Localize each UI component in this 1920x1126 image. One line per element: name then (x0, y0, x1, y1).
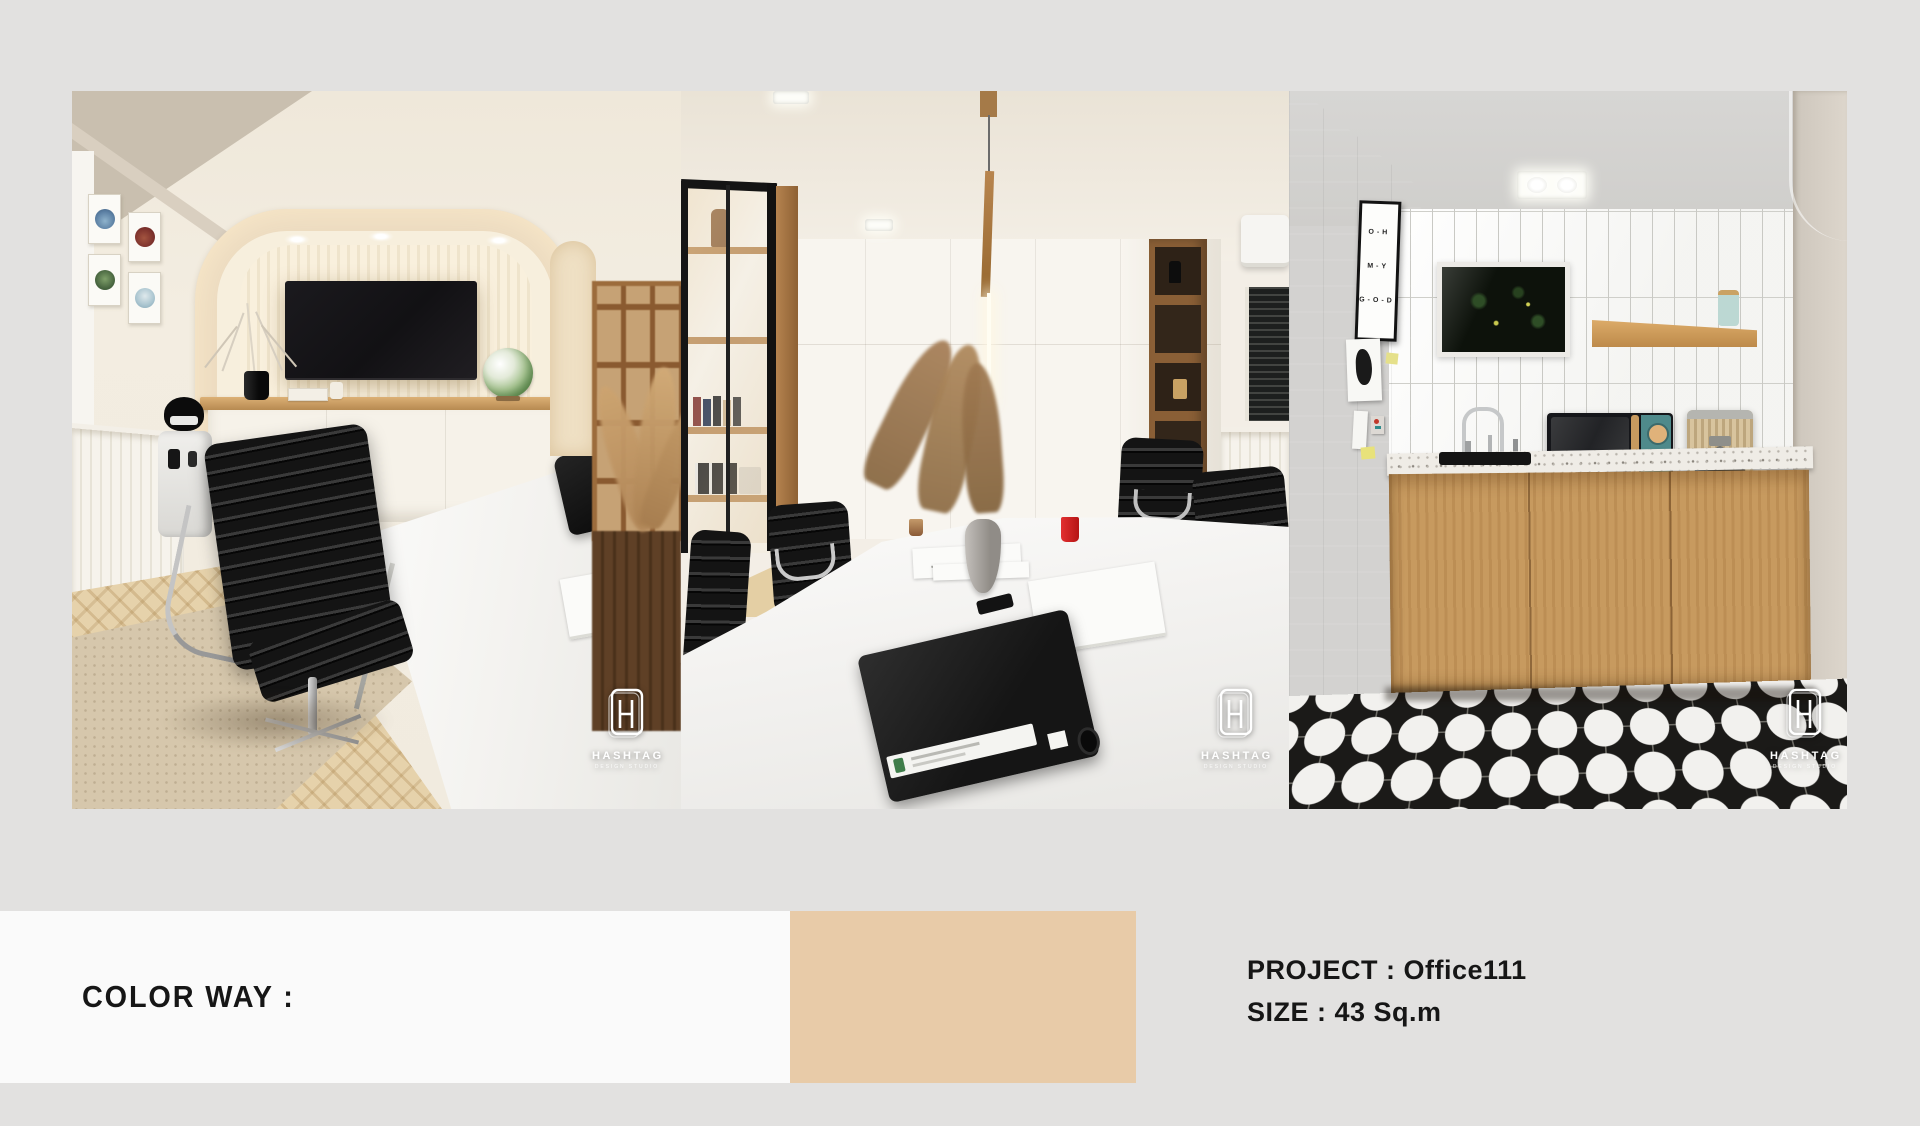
size-line: SIZE : 43 Sq.m (1247, 991, 1527, 1033)
photo-kitchenette: O-H M-Y G-O-D (1289, 91, 1847, 809)
color-way-label: COLOR WAY : (82, 911, 295, 1083)
air-conditioner (1241, 215, 1289, 267)
logo-tagline: DESIGN STUDIO (592, 764, 662, 770)
red-cup (1061, 517, 1079, 542)
window (1437, 262, 1570, 357)
hashtag-monogram-icon (1213, 687, 1259, 743)
pinned-note (1352, 411, 1368, 450)
sticky-note (1385, 352, 1398, 364)
hashtag-logo: HASHTAG DESIGN STUDIO (1770, 687, 1840, 770)
poster-line: M-Y (1360, 249, 1397, 284)
partition-frame (767, 183, 776, 551)
arched-doorway (550, 241, 596, 456)
floor-shadow (162, 691, 392, 751)
hashtag-logo: HASHTAG DESIGN STUDIO (1201, 687, 1271, 770)
color-way-band: COLOR WAY : (0, 911, 790, 1083)
globe-base (496, 396, 520, 401)
framed-poster: O-H M-Y G-O-D (1355, 200, 1402, 341)
poster-line: G-O-D (1358, 283, 1395, 318)
shelf-cubby (1155, 305, 1201, 353)
sticky-note (1361, 446, 1376, 459)
recessed-light (284, 234, 310, 245)
toe-kick-shadow (1385, 687, 1815, 701)
photo-private-office: HASHTAG DESIGN STUDIO (72, 91, 681, 809)
framed-print (128, 212, 161, 262)
hashtag-monogram-icon (1782, 687, 1828, 743)
oak-cabinets (1389, 470, 1811, 696)
pinned-print (1346, 338, 1382, 401)
recessed-light (368, 231, 394, 242)
pendant-mount (980, 91, 997, 117)
design-board: { "canvas": { "background": "#E2E1E0" },… (0, 0, 1920, 1126)
logo-text: HASHTAG (1770, 750, 1840, 762)
logo-text: HASHTAG (1201, 750, 1271, 762)
framed-print (88, 194, 121, 244)
framed-print (128, 272, 161, 324)
coffee-cup (909, 519, 923, 536)
logo-tagline: DESIGN STUDIO (1201, 764, 1271, 770)
dried-branches (212, 303, 296, 379)
poster-line: O-H (1361, 215, 1398, 250)
small-jar (330, 382, 343, 399)
black-sink (1439, 452, 1531, 465)
partition-mullion (726, 185, 730, 547)
pendant-cable (988, 115, 990, 173)
square-spotlight (773, 91, 809, 104)
hashtag-monogram-icon (604, 687, 650, 743)
spot-bulb (1527, 177, 1547, 193)
pinned-card (1371, 416, 1384, 434)
swatch-tan (790, 911, 1136, 1083)
project-line: PROJECT : Office111 (1247, 949, 1527, 991)
wood-post (776, 186, 798, 552)
decor-object (1173, 379, 1187, 399)
partition-frame (681, 181, 688, 553)
book-stack (288, 388, 328, 401)
photo-meeting-room: HASHTAG DESIGN STUDIO (681, 91, 1289, 809)
logo-tagline: DESIGN STUDIO (1770, 764, 1840, 770)
window-blinds (1245, 287, 1289, 421)
framed-print (88, 254, 121, 306)
recessed-light (486, 235, 512, 246)
globe (483, 348, 533, 398)
canister (1718, 290, 1739, 326)
project-info: PROJECT : Office111 SIZE : 43 Sq.m (1247, 949, 1527, 1033)
hashtag-logo: HASHTAG DESIGN STUDIO (592, 687, 662, 770)
square-spotlight (865, 219, 893, 231)
logo-text: HASHTAG (592, 750, 662, 762)
decor-vase (1169, 261, 1181, 283)
spot-bulb (1557, 177, 1577, 193)
black-vase (244, 371, 269, 400)
tv-screen (285, 281, 477, 380)
